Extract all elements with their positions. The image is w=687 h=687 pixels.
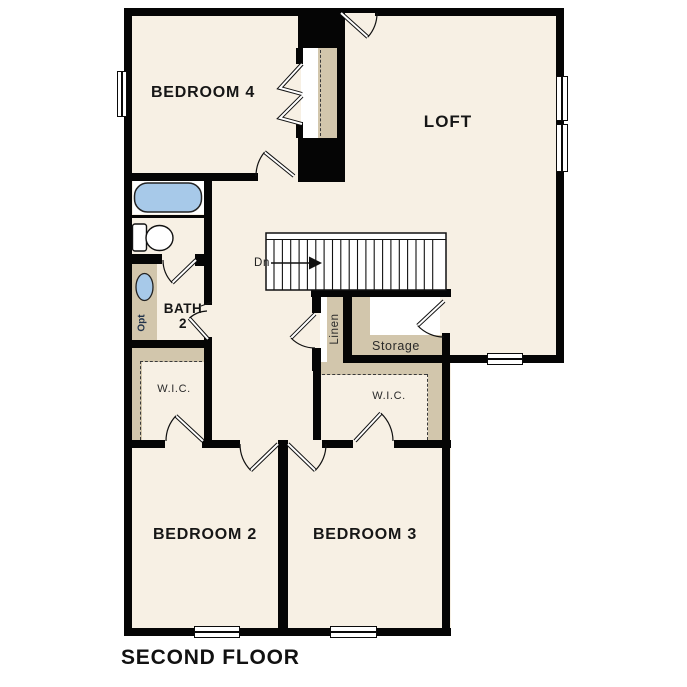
door-loft-entry [341, 13, 377, 37]
bifold-door-bedroom4-closet [280, 64, 302, 124]
wic-right-label: W.I.C. [372, 390, 406, 402]
wic-left-label: W.I.C. [157, 383, 191, 395]
bath-label-leader-line [201, 302, 212, 306]
fixtures-doors-stairs-layer [0, 0, 687, 687]
door-bedroom2 [240, 444, 278, 470]
bathtub [133, 181, 204, 214]
door-linen [291, 314, 315, 348]
floor-plan: BEDROOM 4 LOFT BATH 2 W.I.C. W.I.C. Line… [0, 0, 687, 687]
bedroom2-label: BEDROOM 2 [153, 526, 257, 544]
door-storage [418, 301, 444, 337]
sink [136, 274, 153, 301]
door-bedroom4 [256, 152, 294, 176]
door-wic-right [355, 413, 393, 441]
loft-label: LOFT [424, 112, 472, 132]
door-bedroom3 [288, 444, 326, 470]
bath2-label-line2: 2 [164, 316, 203, 331]
door-bath-compartment [163, 260, 196, 283]
toilet [133, 224, 174, 251]
stairs-dn-label: Dn [254, 257, 270, 269]
optional-sink-label: Opt [137, 314, 148, 331]
door-wic-left [166, 416, 203, 441]
bedroom3-label: BEDROOM 3 [313, 526, 417, 544]
bath2-label: BATH 2 [164, 301, 203, 331]
staircase [266, 233, 446, 290]
storage-label: Storage [372, 339, 420, 353]
linen-label: Linen [329, 313, 341, 344]
bath2-label-line1: BATH [164, 301, 203, 316]
bedroom4-label: BEDROOM 4 [151, 84, 255, 102]
plan-title: SECOND FLOOR [121, 646, 300, 670]
